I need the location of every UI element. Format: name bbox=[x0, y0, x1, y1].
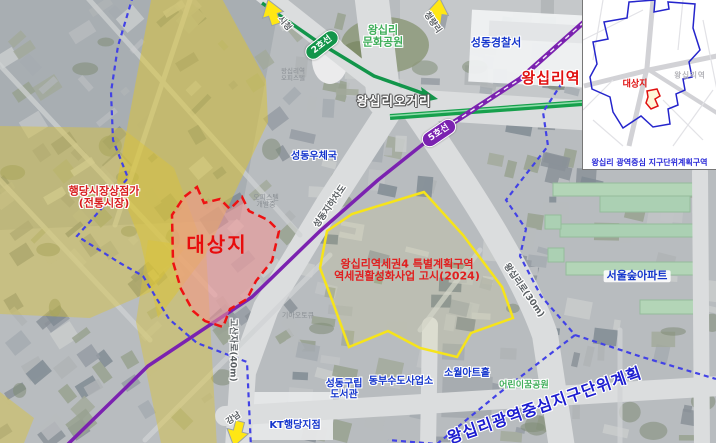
keymap-site-label: 대상지 bbox=[623, 77, 648, 90]
keymap-station-label: 왕십리역 bbox=[674, 70, 706, 81]
subway-line2 bbox=[262, 3, 583, 117]
arrow-up-cheongnyangni-icon bbox=[425, 0, 450, 25]
map-canvas: 2호선 5호선 시청 청량리 강남 왕십리역 왕십리오거리 성동경찰서 왕십리 … bbox=[0, 0, 716, 443]
arrow-down-gangnam-icon bbox=[223, 419, 251, 443]
special-zone-outline bbox=[320, 192, 513, 357]
keymap-caption: 왕십리 광역중심 지구단위계획구역 bbox=[583, 157, 716, 168]
keymap-inset: KEY MAP 대상지 왕십리역 왕십리 광역중심 지구단위계획구역 bbox=[582, 0, 716, 170]
